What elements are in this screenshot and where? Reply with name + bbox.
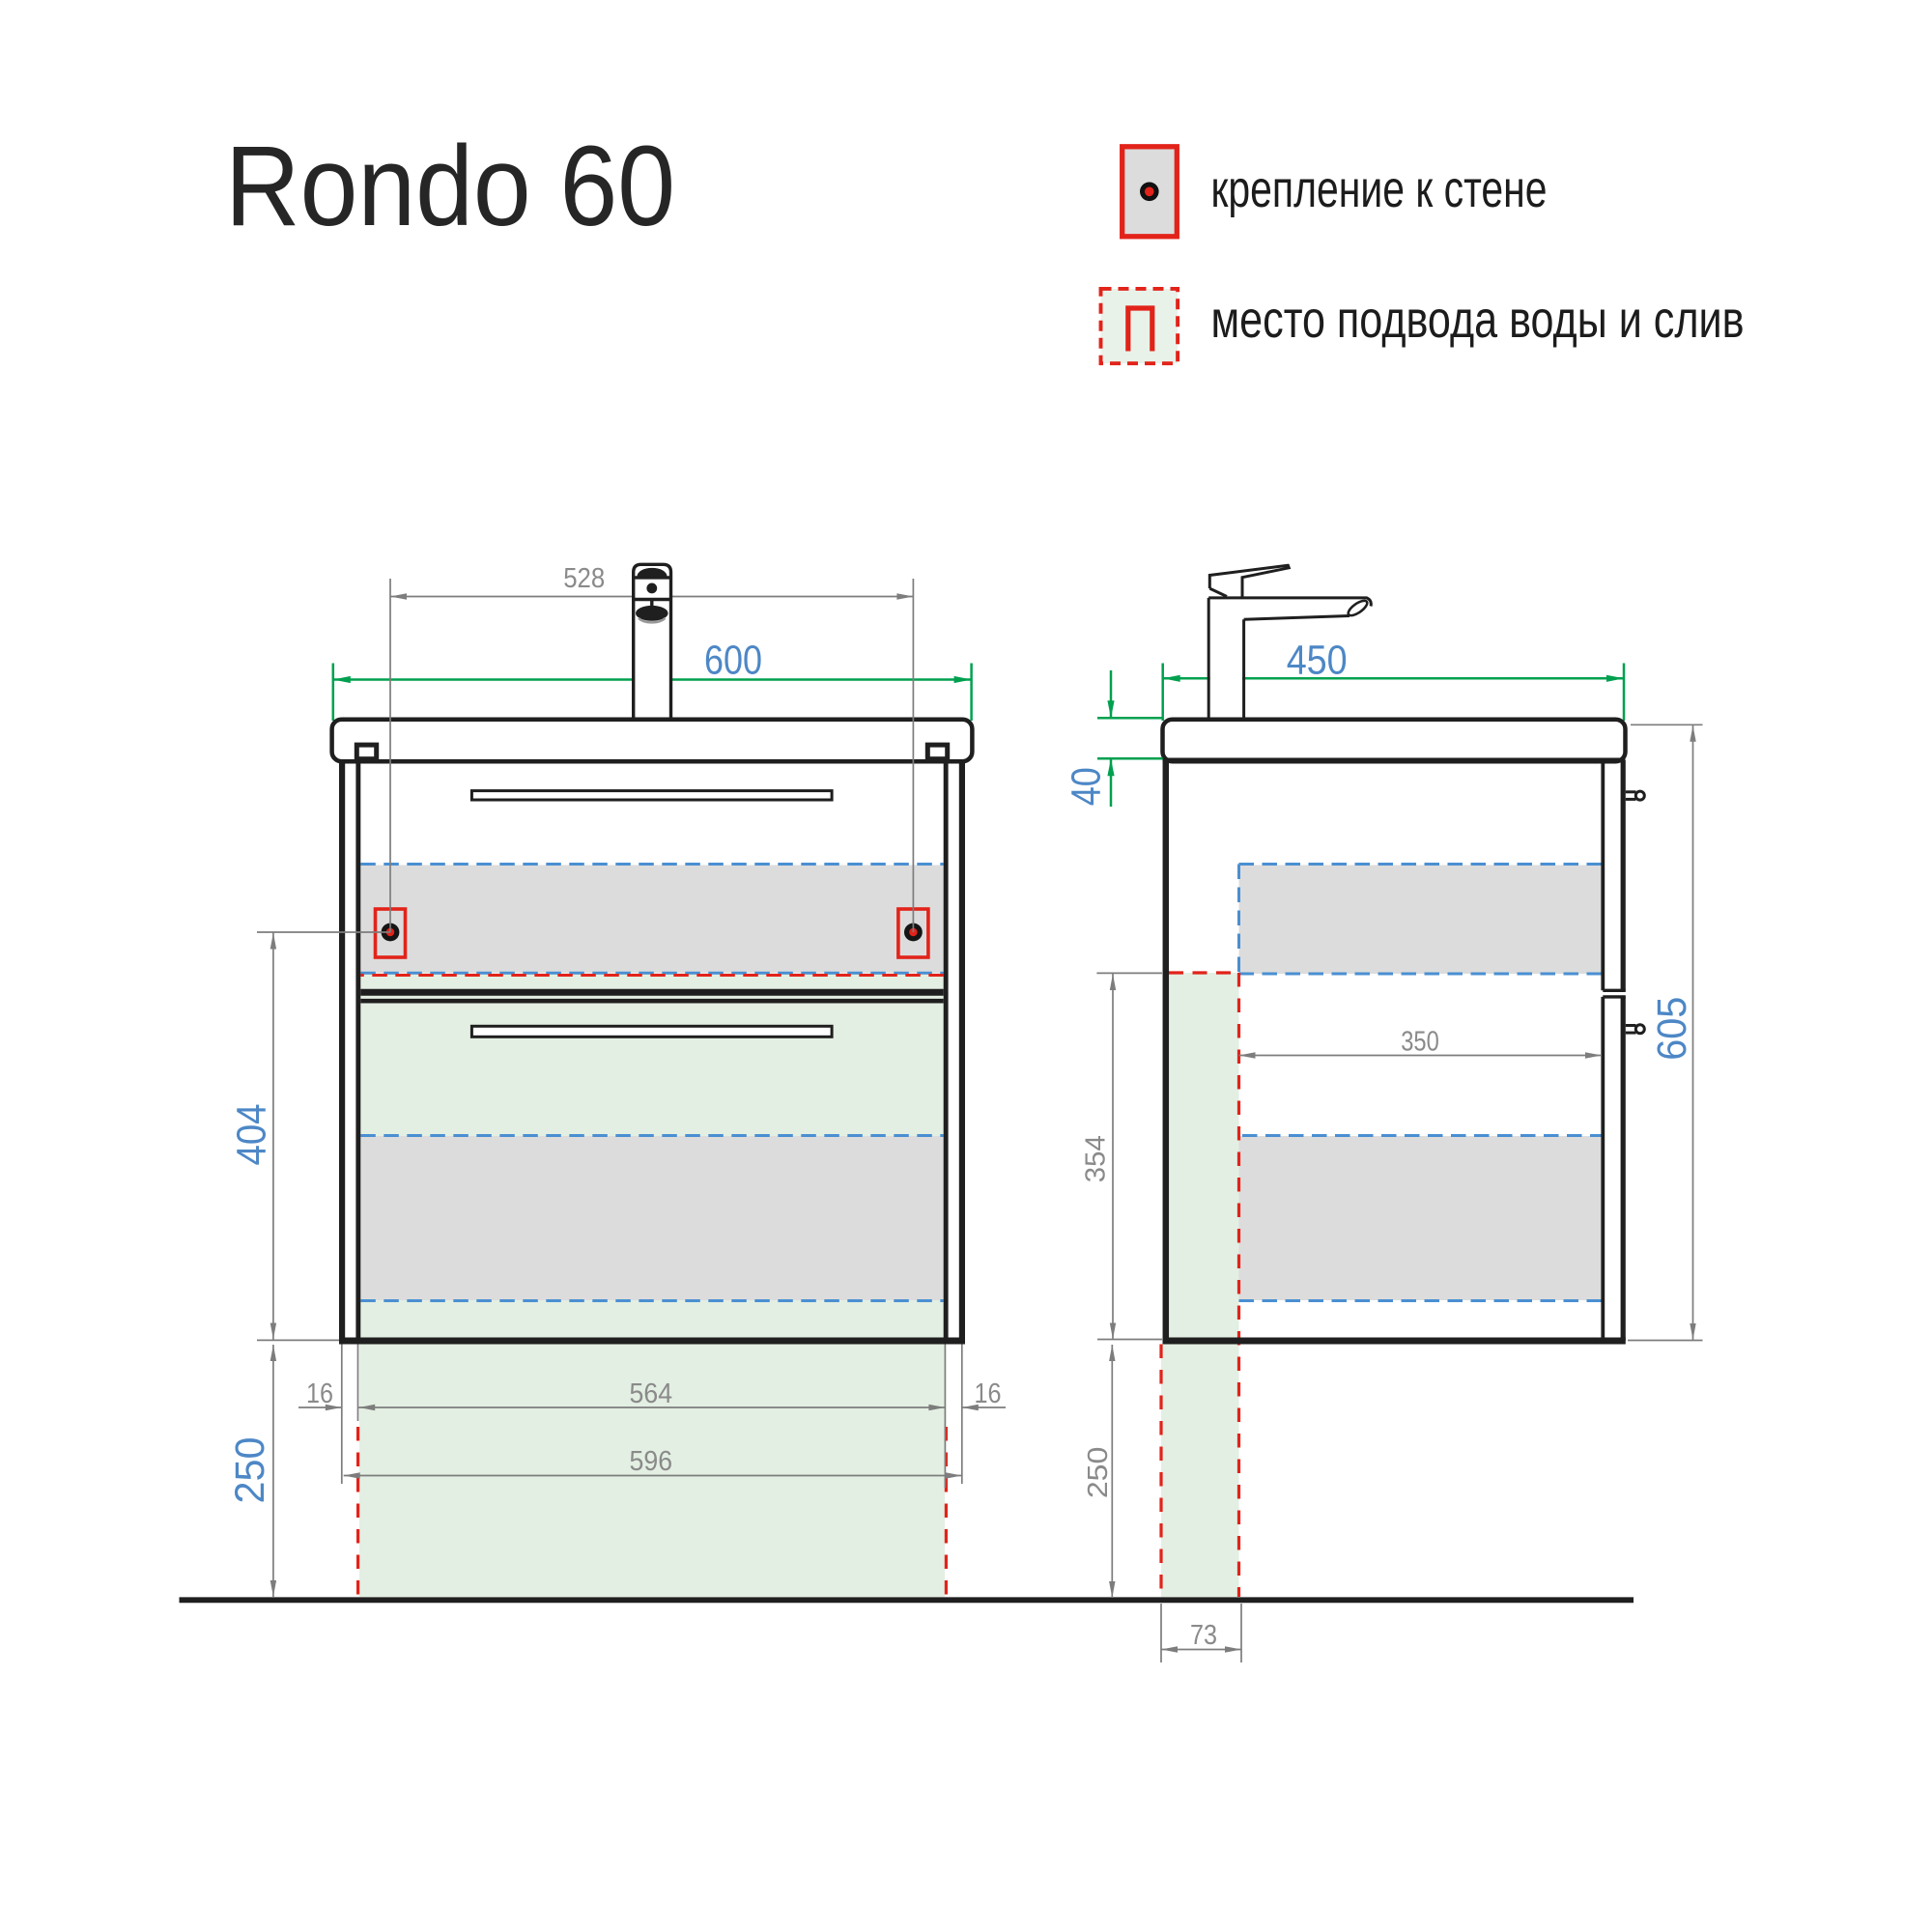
svg-text:250: 250 (227, 1437, 273, 1504)
svg-text:404: 404 (229, 1104, 275, 1166)
svg-text:350: 350 (1401, 1027, 1439, 1058)
svg-text:40: 40 (1064, 767, 1110, 806)
svg-text:73: 73 (1190, 1620, 1217, 1651)
svg-text:564: 564 (630, 1378, 673, 1409)
svg-text:16: 16 (306, 1378, 333, 1409)
svg-text:605: 605 (1649, 997, 1695, 1061)
svg-text:354: 354 (1080, 1135, 1111, 1182)
svg-text:место подвода воды и слив: место подвода воды и слив (1211, 291, 1745, 349)
svg-text:450: 450 (1287, 638, 1348, 684)
svg-text:16: 16 (975, 1378, 1002, 1409)
svg-text:250: 250 (1083, 1447, 1114, 1499)
svg-text:крепление к стене: крепление к стене (1211, 160, 1548, 218)
svg-text:528: 528 (563, 563, 605, 594)
svg-text:Rondo 60: Rondo 60 (225, 123, 675, 250)
svg-text:596: 596 (630, 1446, 673, 1477)
svg-text:600: 600 (704, 638, 762, 684)
